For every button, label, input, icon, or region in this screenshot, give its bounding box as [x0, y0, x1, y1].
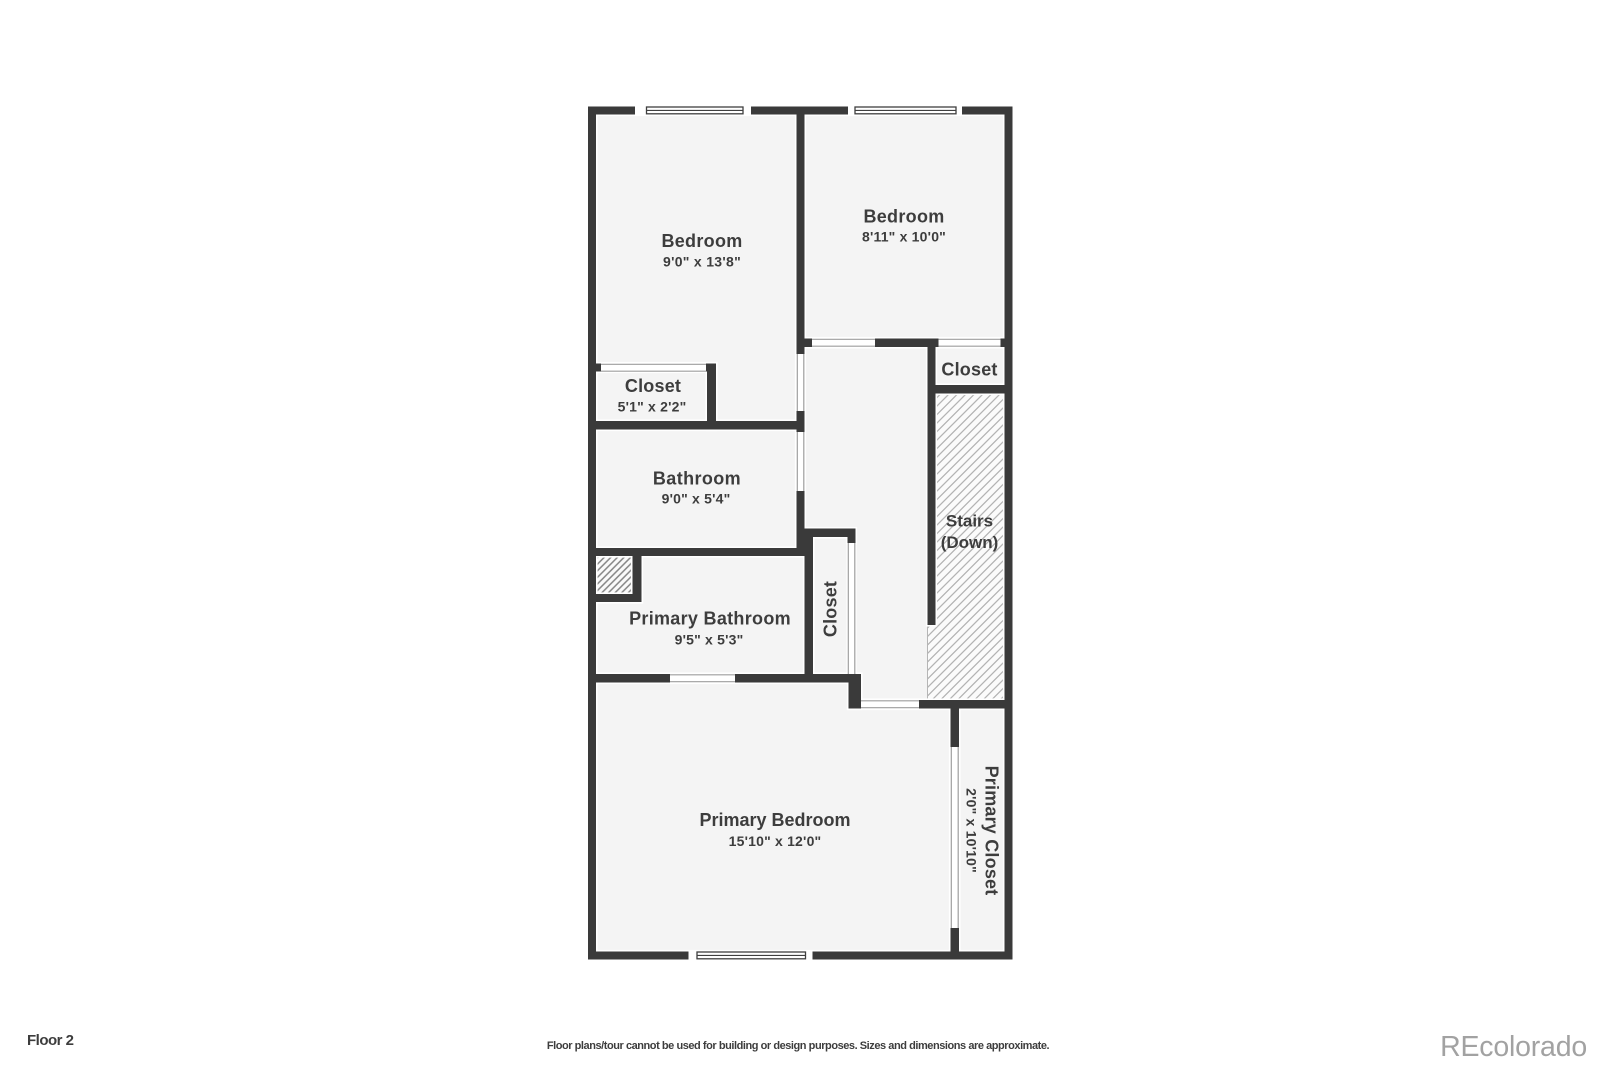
- svg-text:2'0" x 10'10": 2'0" x 10'10": [964, 788, 980, 873]
- svg-text:15'10" x 12'0": 15'10" x 12'0": [729, 833, 822, 849]
- svg-text:Primary Bathroom: Primary Bathroom: [629, 609, 791, 629]
- svg-text:Primary Closet: Primary Closet: [982, 766, 1002, 896]
- svg-text:Closet: Closet: [821, 581, 841, 637]
- svg-text:Floor 2: Floor 2: [27, 1032, 74, 1049]
- svg-text:REcolorado: REcolorado: [1440, 1031, 1587, 1063]
- svg-text:Bedroom: Bedroom: [863, 207, 944, 227]
- svg-text:5'1" x 2'2": 5'1" x 2'2": [618, 399, 687, 415]
- svg-text:Bathroom: Bathroom: [653, 469, 741, 489]
- svg-text:Closet: Closet: [941, 360, 997, 380]
- svg-text:9'5" x 5'3": 9'5" x 5'3": [675, 632, 744, 648]
- svg-text:Stairs: Stairs: [946, 512, 993, 531]
- svg-text:8'11" x 10'0": 8'11" x 10'0": [862, 229, 946, 245]
- svg-text:Primary Bedroom: Primary Bedroom: [699, 810, 850, 830]
- svg-text:Floor plans/tour cannot be use: Floor plans/tour cannot be used for buil…: [547, 1040, 1050, 1052]
- svg-text:9'0" x 13'8": 9'0" x 13'8": [663, 254, 741, 270]
- svg-text:9'0" x 5'4": 9'0" x 5'4": [662, 491, 731, 507]
- svg-text:(Down): (Down): [941, 533, 999, 552]
- svg-text:Bedroom: Bedroom: [661, 231, 742, 251]
- svg-text:Closet: Closet: [625, 376, 681, 396]
